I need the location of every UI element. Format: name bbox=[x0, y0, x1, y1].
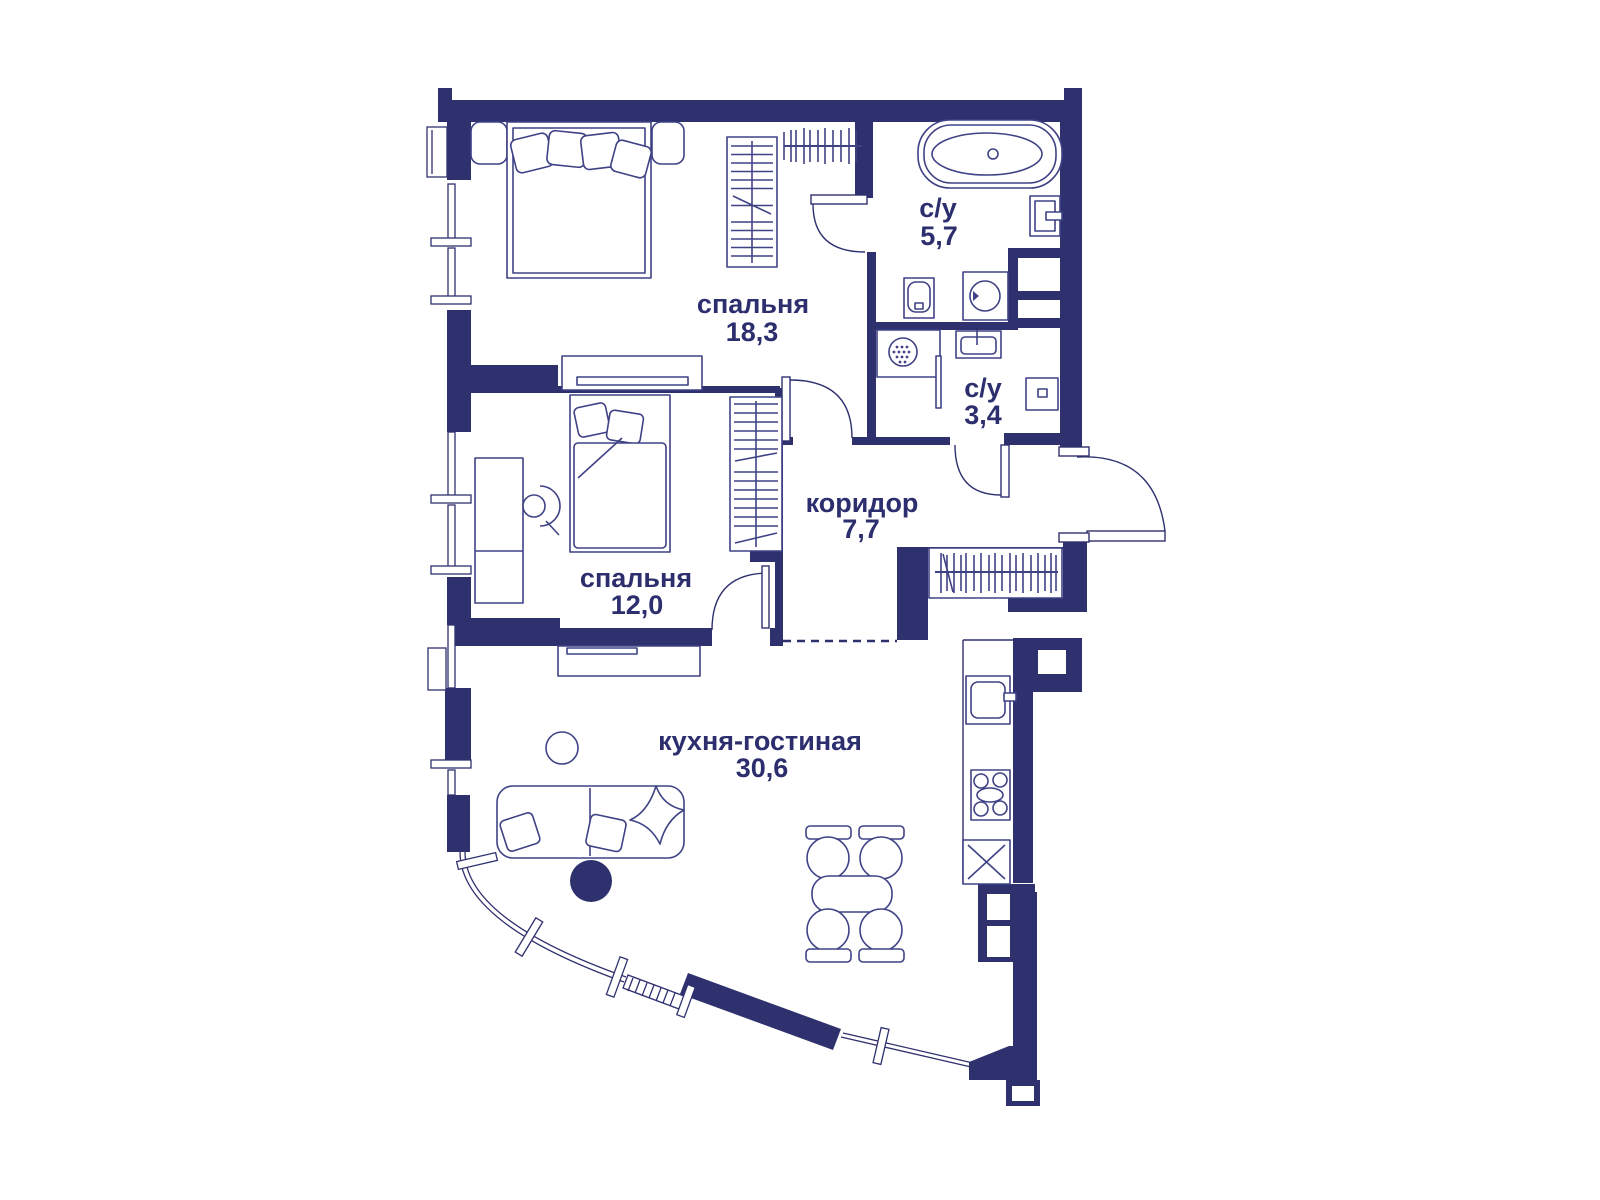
bathroom-large-door bbox=[811, 195, 867, 252]
room-name: спальня bbox=[580, 563, 692, 593]
room-name: с/у bbox=[964, 373, 1002, 403]
pouf-icon bbox=[570, 860, 612, 902]
kitchen-east-wall bbox=[1013, 692, 1033, 883]
dining-set-icon bbox=[806, 826, 904, 962]
round-table-icon bbox=[546, 732, 578, 764]
room-area: 7,7 bbox=[842, 514, 880, 544]
corridor-closet bbox=[929, 548, 1062, 598]
floor-plan-drawing: спальня 18,3 с/у 5,7 с/у 3,4 спальня 12,… bbox=[0, 0, 1600, 1200]
closet-block bbox=[897, 547, 928, 640]
bedside-table-icon bbox=[652, 122, 684, 164]
bedroom-large-door bbox=[782, 377, 852, 441]
bedroom-small-door bbox=[712, 566, 769, 630]
furniture bbox=[471, 120, 1062, 962]
wardrobe-icon bbox=[727, 137, 777, 267]
room-name: с/у bbox=[919, 193, 957, 223]
angled-wall bbox=[680, 973, 841, 1050]
sink-icon bbox=[1030, 196, 1062, 236]
hood-appliance-icon bbox=[963, 840, 1010, 884]
washing-machine-icon bbox=[963, 272, 1008, 320]
mirror-cabinet-icon bbox=[1026, 378, 1058, 410]
bathtub-icon bbox=[918, 120, 1062, 188]
bedside-table-icon bbox=[471, 122, 507, 164]
wall-foot bbox=[969, 1046, 1037, 1080]
shower-icon bbox=[877, 330, 940, 377]
tv-console-icon bbox=[558, 646, 700, 676]
room-area: 3,4 bbox=[964, 400, 1002, 430]
entrance-door bbox=[1059, 447, 1165, 542]
room-area: 12,0 bbox=[611, 590, 664, 620]
dining-table bbox=[812, 876, 892, 912]
stove-icon bbox=[971, 770, 1010, 820]
kitchen-living-furniture bbox=[497, 646, 1016, 962]
toilet-icon bbox=[904, 278, 934, 318]
desk-icon bbox=[475, 458, 523, 603]
single-bed-icon bbox=[570, 395, 670, 552]
sink-icon bbox=[956, 330, 1001, 358]
room-area: 5,7 bbox=[920, 221, 958, 251]
sofa-icon bbox=[497, 786, 684, 858]
floor-plan-page: спальня 18,3 с/у 5,7 с/у 3,4 спальня 12,… bbox=[0, 0, 1600, 1200]
room-area: 30,6 bbox=[736, 753, 789, 783]
exterior-wall-top bbox=[438, 100, 1082, 122]
bedroom-large-furniture bbox=[471, 122, 862, 278]
bathroom-small-door bbox=[955, 445, 1009, 497]
kitchen-sink-icon bbox=[966, 676, 1016, 724]
room-name: кухня-гостиная bbox=[658, 726, 862, 756]
hanger-rod-icon bbox=[784, 128, 862, 164]
room-area: 18,3 bbox=[726, 317, 779, 347]
shower-glass-panel bbox=[936, 356, 941, 408]
desk-chair-icon bbox=[523, 486, 560, 535]
room-name: спальня bbox=[697, 289, 809, 319]
wardrobe-icon bbox=[730, 397, 782, 551]
tv-console-icon bbox=[562, 356, 702, 390]
exterior-wall-right bbox=[1060, 122, 1082, 455]
double-bed-icon bbox=[507, 122, 653, 278]
